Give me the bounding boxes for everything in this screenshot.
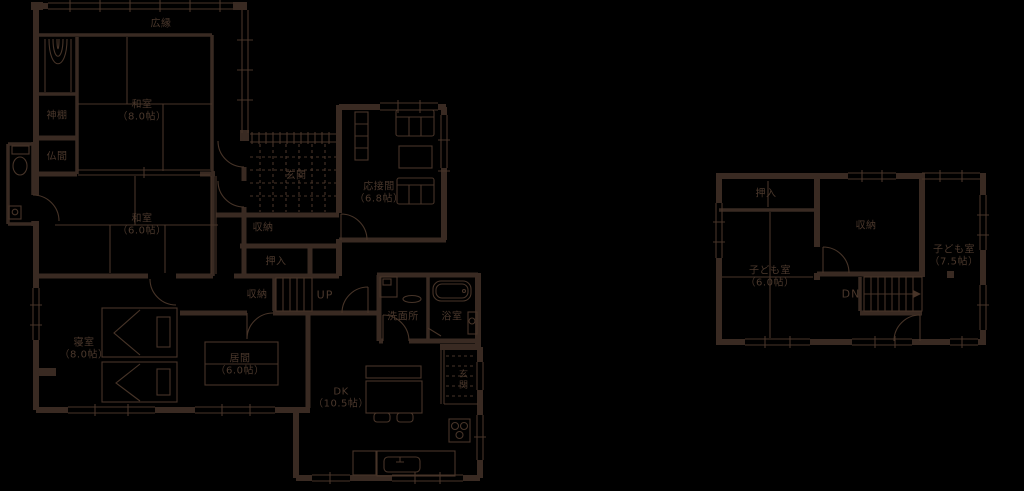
label-butsuma: 仏間: [47, 151, 68, 163]
label-ima: 居間（6.0帖）: [216, 354, 265, 377]
floor2-tatami-lines: [722, 181, 813, 338]
label-genkan-east: 玄関: [457, 369, 467, 391]
chair-icon: [374, 413, 390, 422]
label-kodomo-60: 子ども室（6.0帖）: [746, 266, 795, 289]
label-yokushitsu: 浴室: [442, 311, 463, 323]
entrance-sliding-door: [250, 132, 336, 144]
toilet-icon: [9, 146, 29, 219]
label-senmenjo: 洗面所: [387, 311, 419, 323]
bathtub-icon: [433, 281, 477, 334]
label-washitsu8: 和室（8.0帖）: [118, 100, 167, 123]
label-kodomo-75: 子ども室（7.5帖）: [930, 245, 979, 268]
label-dk: DK（10.5帖）: [313, 387, 369, 410]
tokonoma-wood-grain-icon: [45, 39, 71, 92]
dining-table-icon: [366, 381, 422, 413]
stairs-direction-arrow: [913, 290, 921, 298]
label-oshiire: 押入: [266, 256, 287, 268]
label-shinshitsu: 寝室（8.0帖）: [60, 338, 109, 361]
bed-icons: [102, 308, 177, 402]
washbasin-icon: [403, 296, 421, 303]
label-genkan: 玄関: [286, 170, 307, 182]
tv-marker-icon: [947, 271, 954, 278]
stairs-up-icon: [276, 278, 312, 311]
label-storage-stairs: 収納: [247, 289, 268, 301]
label-washitsu6: 和室（6.0帖）: [118, 214, 167, 237]
label-stairs-dn: DN: [842, 288, 861, 300]
kitchen-icons: [353, 366, 470, 476]
label-stairs-up: UP: [317, 289, 334, 301]
sideboard-icon: [366, 366, 421, 378]
refrigerator-icon: [353, 451, 376, 475]
label-oshiire-2f: 押入: [756, 188, 777, 200]
label-kamidana: 神棚: [47, 110, 68, 122]
floorplan-drawing: [0, 0, 1024, 491]
label-storage-2f: 収納: [856, 220, 877, 232]
stairs-down-icon: [864, 277, 922, 311]
label-hiroen: 広縁: [151, 18, 172, 30]
label-storage-hall: 収納: [253, 222, 274, 234]
wall-stub: [33, 368, 56, 376]
floorplan-canvas: 広縁 和室（8.0帖） 神棚 仏間 玄関 応接間（6.8帖） 和室（6.0帖） …: [0, 0, 1024, 491]
chair-icon: [397, 413, 413, 422]
washing-machine-icon: [380, 277, 421, 303]
label-ousetsuma: 応接間（6.8帖）: [355, 182, 404, 205]
coffee-table-icon: [399, 146, 432, 168]
floor1-plan: [8, 0, 770, 484]
toilet-sink-icon: [9, 206, 21, 219]
kitchen-sink-icon: [384, 457, 420, 472]
